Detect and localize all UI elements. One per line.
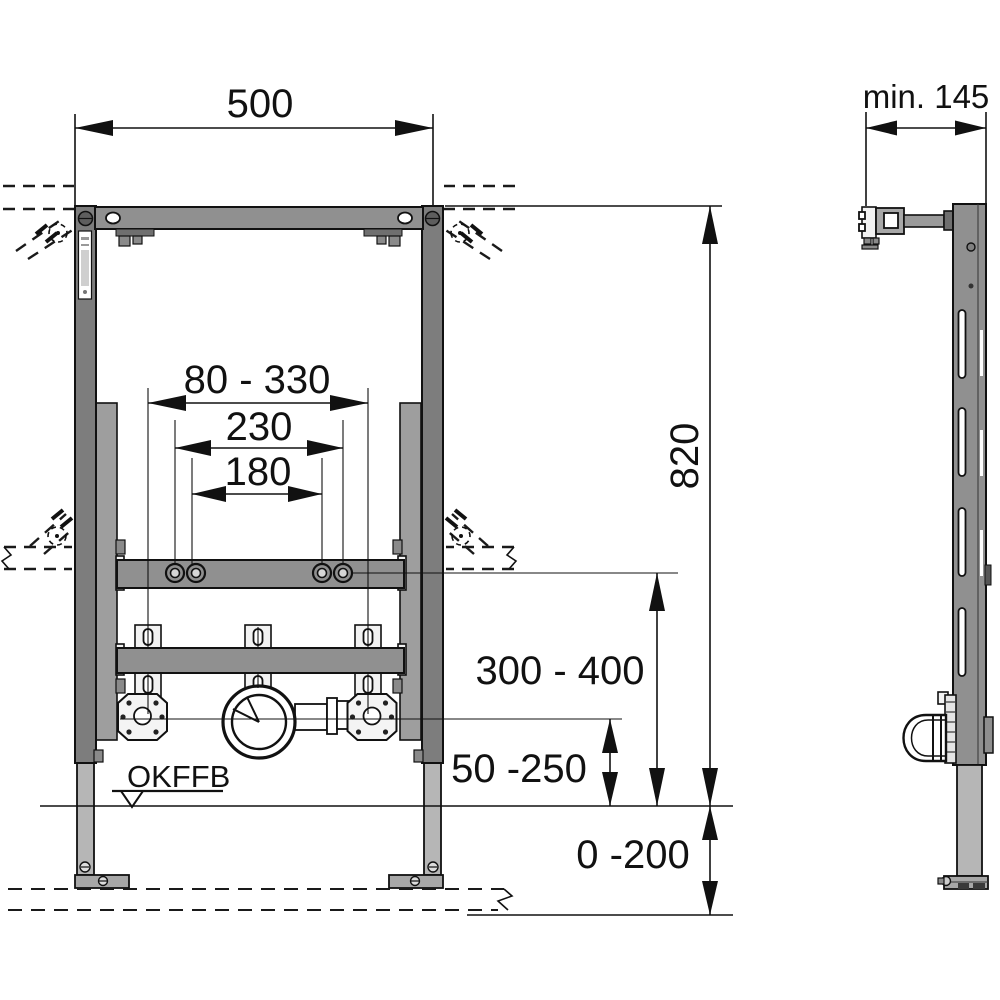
outer-upright-right [422, 206, 443, 763]
arrowhead [649, 573, 665, 611]
profile-slot [959, 408, 966, 476]
rivet-dot [356, 700, 361, 705]
dim-drain-height-range: 50 -250 [451, 719, 618, 806]
bolt-hole-inner [339, 569, 348, 578]
floor-level-marker: OKFFB [112, 759, 230, 807]
dim-label-180: 180 [225, 450, 292, 494]
wall-bracket [859, 207, 954, 249]
rail-bolt [393, 679, 402, 693]
rail-bolt [393, 540, 402, 554]
arrowhead [955, 121, 986, 136]
arrowhead [702, 768, 718, 806]
level-triangle [121, 791, 143, 807]
wall-anchor-top-left [3, 186, 74, 259]
bracket-plate [116, 229, 154, 236]
arrowhead [75, 120, 113, 136]
arrowhead [330, 395, 368, 411]
arrowhead [148, 395, 186, 411]
bracket-notch [859, 224, 865, 231]
dim-label-min-145: min. 145 [863, 78, 990, 115]
foot-pad [958, 883, 969, 889]
drain-pipe-flange [327, 698, 337, 734]
rivet-dot [383, 729, 388, 734]
bracket-bolt [133, 236, 142, 244]
arrowhead [702, 881, 718, 915]
plate-center-hole [364, 708, 381, 725]
profile-hole [967, 243, 975, 251]
profile-hole [969, 284, 974, 289]
dim-label-820: 820 [663, 423, 707, 490]
dim-frame-height: 820 [663, 206, 718, 806]
profile-slot-narrow [980, 530, 983, 576]
arrowhead [866, 121, 897, 136]
arrowhead [702, 206, 718, 244]
lower-crossrail [117, 648, 404, 673]
profile-slot [959, 508, 966, 576]
rail-hole [106, 213, 120, 224]
profile-body [953, 204, 986, 765]
inner-upright-left [96, 403, 117, 740]
bracket-block-hole [884, 213, 898, 228]
leg-lock-bolt [94, 750, 103, 762]
bracket-bolt [377, 236, 386, 244]
profile-tab [984, 717, 993, 753]
dim-spacing-outer: 230 [175, 405, 343, 456]
side-leg [957, 765, 982, 876]
technical-drawing: OKFFB 500 80 - 330 230 [0, 0, 1000, 1000]
rail-bolt [116, 679, 125, 693]
dim-label-300-400: 300 - 400 [475, 649, 644, 693]
profile-tab [985, 565, 991, 585]
floor-level-label: OKFFB [127, 759, 230, 794]
rivet-dot [126, 700, 131, 705]
bracket-bolt [119, 236, 130, 246]
dim-anchor-range: 80 - 330 [148, 358, 368, 411]
leg-lock-bolt [414, 750, 423, 762]
break-zigzag [498, 889, 512, 910]
arrowhead [192, 486, 226, 502]
arrowhead [702, 806, 718, 840]
label-sticker-mark [81, 244, 89, 246]
bracket-rod [904, 215, 944, 227]
side-view: min. 145 [859, 78, 993, 889]
bracket-foot [864, 238, 871, 244]
rivet-dot [126, 729, 131, 734]
foot-bolt-head [938, 878, 944, 884]
dim-spacing-inner: 180 [192, 450, 322, 502]
side-profile [953, 204, 993, 765]
arrowhead [307, 440, 343, 456]
bracket-plate [364, 229, 402, 236]
rivet-dot [383, 700, 388, 705]
bracket-bolt [389, 236, 400, 246]
dim-label-0-200: 0 -200 [576, 833, 689, 877]
side-drain-elbow [904, 692, 957, 763]
arrowhead [602, 719, 618, 753]
side-foot [938, 765, 988, 889]
front-view: OKFFB 500 80 - 330 230 [2, 82, 733, 915]
foot-pad [973, 883, 985, 889]
rail-bolt [116, 540, 125, 554]
installation-frame-drawing: OKFFB 500 80 - 330 230 [0, 0, 1000, 1000]
arrowhead [288, 486, 322, 502]
dim-label-500: 500 [227, 82, 294, 126]
dim-label-80-330: 80 - 330 [184, 358, 331, 402]
dim-min-depth: min. 145 [863, 78, 990, 206]
wall-anchor-top-right [444, 186, 515, 259]
arrowhead [602, 772, 618, 806]
arrowhead [395, 120, 433, 136]
rail-hole [398, 213, 412, 224]
label-sticker [79, 231, 92, 299]
bolt-hole-inner [318, 569, 327, 578]
rivet-dot [153, 729, 158, 734]
profile-slot-narrow [980, 330, 983, 376]
drain-pipe [295, 704, 327, 730]
profile-slot [959, 310, 966, 378]
bracket-foot [873, 238, 879, 244]
bracket-foot [862, 245, 878, 249]
label-sticker-mark [83, 290, 87, 294]
bolt-hole-inner [171, 569, 180, 578]
upper-crossrail [117, 560, 404, 588]
fixing-plate-right [348, 694, 397, 740]
profile-slot-narrow [980, 430, 983, 476]
dim-frame-width: 500 [75, 82, 433, 205]
dim-label-230: 230 [226, 405, 293, 449]
wall-anchor-mid-left [2, 510, 74, 569]
label-sticker-mark [81, 250, 89, 286]
drain-elbow [223, 686, 295, 758]
rivet-dot [153, 700, 158, 705]
bracket-notch [859, 212, 865, 219]
label-sticker-mark [81, 237, 89, 240]
top-rail [95, 207, 423, 229]
fixing-plate-left [118, 694, 167, 740]
elbow-body [904, 715, 947, 761]
arrowhead [175, 440, 211, 456]
dim-floor-buildup-range: 0 -200 [576, 806, 718, 915]
rivet-dot [356, 729, 361, 734]
wall-anchor-mid-right [444, 510, 516, 569]
leg-right [424, 763, 441, 875]
leg-left [77, 763, 94, 875]
bolt-hole-inner [192, 569, 201, 578]
profile-slot [959, 608, 966, 676]
arrowhead [649, 768, 665, 806]
dim-label-50-250: 50 -250 [451, 747, 587, 791]
